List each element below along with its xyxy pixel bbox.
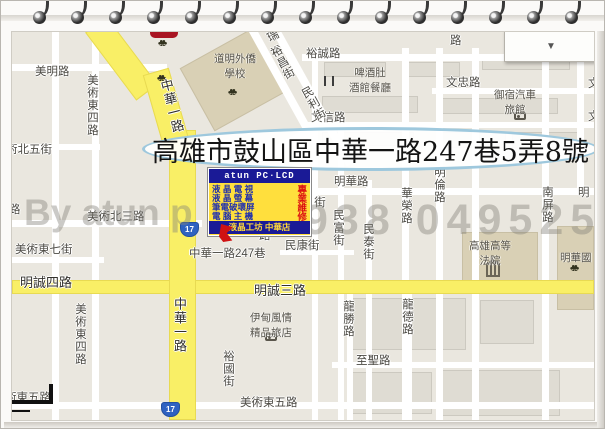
spiral-ring-icon bbox=[69, 2, 85, 28]
spiral-ring-icon bbox=[525, 2, 541, 28]
street-label: 美術東五路 bbox=[240, 394, 298, 410]
poi-label: 酒館餐廳 bbox=[349, 80, 391, 95]
page-shadow-right bbox=[597, 26, 604, 429]
spiral-ring-icon bbox=[487, 2, 503, 28]
spiral-ring-icon bbox=[183, 2, 199, 28]
spiral-ring-icon bbox=[563, 2, 579, 28]
spiral-ring-icon bbox=[259, 2, 275, 28]
street-label: 裕誠路 bbox=[306, 45, 341, 61]
street-label: 文忠路 bbox=[446, 74, 481, 90]
ad-row: 電 腦 主 機 修 bbox=[212, 211, 307, 220]
spiral-binding bbox=[1, 1, 605, 31]
spiral-ring-icon bbox=[335, 2, 351, 28]
street-label: 至聖路 bbox=[356, 352, 391, 368]
poi-label: 道明外僑 bbox=[214, 51, 256, 66]
poi-label: 法院 bbox=[469, 253, 511, 268]
building bbox=[480, 300, 534, 344]
spiral-ring-icon bbox=[145, 2, 161, 28]
poi-label: 啤酒肚 bbox=[349, 65, 391, 80]
ad-accent-text: 修 bbox=[297, 209, 307, 223]
street-label: 美術東七街 bbox=[15, 241, 73, 257]
poi-minghua-school: 明華國 bbox=[560, 250, 592, 265]
address-banner-text: 高雄市鼓山區中華一路247巷5弄8號 bbox=[152, 130, 589, 169]
spiral-ring-icon bbox=[297, 2, 313, 28]
poi-boutique-hotel: 伊甸風情 精品旅店 bbox=[250, 310, 292, 340]
spiral-ring-icon bbox=[31, 2, 47, 28]
street-label: 美術東四路 bbox=[84, 74, 100, 137]
street-label: 中華一路 bbox=[170, 297, 189, 353]
scale-bar-line bbox=[12, 410, 30, 412]
poi-label: 明華國 bbox=[560, 250, 592, 265]
street-dongqi bbox=[12, 257, 104, 263]
spiral-ring-icon bbox=[373, 2, 389, 28]
poi-label: 精品旅店 bbox=[250, 325, 292, 340]
spiral-ring-icon bbox=[221, 2, 237, 28]
watermark: By atun p bbox=[24, 192, 193, 234]
poi-label: 旅館 bbox=[494, 102, 536, 117]
notebook-page: 17 17 美明路 美術東四路 術北五街 路 美術北三路 美術東七街 明誠四路 … bbox=[0, 0, 605, 429]
street-label: 術北五街 bbox=[11, 141, 52, 157]
school-block bbox=[180, 31, 287, 131]
street-label: 龍勝路 bbox=[340, 300, 356, 338]
street-label: 龍德路 bbox=[399, 298, 415, 336]
page-shadow-bottom bbox=[4, 422, 603, 428]
watermark: 938 049525 曾 bbox=[304, 185, 595, 247]
street-label: 中華一路247巷 bbox=[189, 245, 266, 261]
street-label: 美明路 bbox=[35, 63, 70, 79]
spiral-ring-icon bbox=[411, 2, 427, 28]
poi-dominican-school: 道明外僑 學校 bbox=[214, 51, 256, 81]
road-zhonghua-main bbox=[169, 130, 196, 420]
street-label: 文 bbox=[588, 108, 595, 124]
street-label: 明誠三路 bbox=[254, 280, 306, 299]
street-label: 路 bbox=[450, 32, 462, 48]
poi-label: 伊甸風情 bbox=[250, 310, 292, 325]
poi-label: 學校 bbox=[214, 66, 256, 81]
chevron-down-icon: ▼ bbox=[546, 41, 556, 52]
tree-icon: ♣♣ bbox=[158, 38, 163, 49]
map-canvas[interactable]: 17 17 美明路 美術東四路 術北五街 路 美術北三路 美術東七街 明誠四路 … bbox=[11, 31, 595, 421]
street-dongwu bbox=[12, 402, 594, 409]
poi-beer-restaurant: 啤酒肚 酒館餐廳 bbox=[349, 65, 391, 95]
poi-motel: 御宿汽車 旅館 bbox=[494, 87, 536, 117]
street-label: 明誠四路 bbox=[20, 272, 72, 291]
spiral-ring-icon bbox=[107, 2, 123, 28]
address-banner: 高雄市鼓山區中華一路247巷5弄8號 bbox=[142, 127, 595, 171]
spiral-ring-icon bbox=[449, 2, 465, 28]
red-shield-fragment bbox=[150, 31, 178, 38]
ad-text: 電 腦 主 機 bbox=[212, 210, 253, 222]
street-label: 美術東四路 bbox=[72, 303, 88, 366]
tree-icon: ♣♣ bbox=[228, 87, 233, 98]
map-control-dropdown[interactable]: ▼ bbox=[504, 31, 595, 62]
scale-bar bbox=[12, 382, 72, 416]
street-label: 路 bbox=[11, 201, 21, 217]
scale-bar-line bbox=[12, 400, 53, 404]
street-label: 文 bbox=[588, 75, 595, 91]
ad-header: atun PC·LCD bbox=[209, 169, 310, 183]
ad-body: 液 晶 電 視 專 液 晶 螢 幕 業 筆電破壞屏 維 電 腦 主 機 修 bbox=[209, 183, 310, 221]
street-label: 裕國街 bbox=[220, 350, 236, 388]
restaurant-icon bbox=[324, 76, 334, 86]
poi-label: 御宿汽車 bbox=[494, 87, 536, 102]
